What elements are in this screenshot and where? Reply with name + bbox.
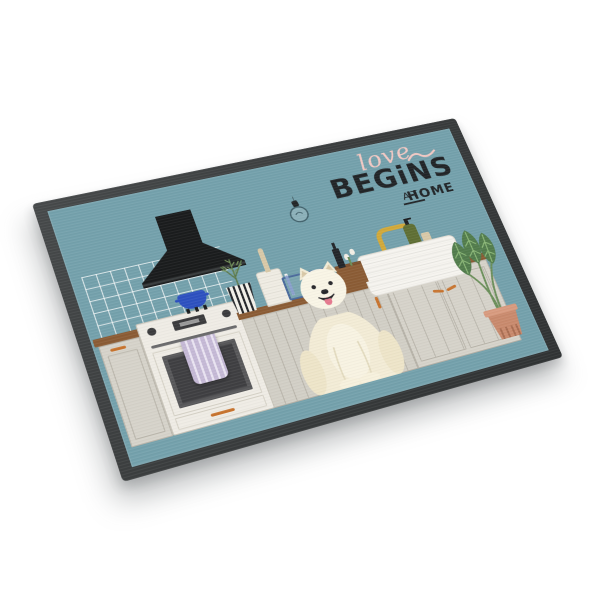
sink-cabinet-handle bbox=[446, 284, 457, 291]
sink-cabinet-handle bbox=[433, 290, 444, 293]
doormat-surface: love BEGiNS ATHOME bbox=[47, 128, 548, 467]
doormat: love BEGiNS ATHOME bbox=[32, 118, 563, 482]
product-photo: love BEGiNS ATHOME bbox=[0, 0, 600, 600]
stove-display bbox=[172, 314, 207, 331]
stove-knob bbox=[221, 309, 232, 318]
pendant-light-bulb bbox=[282, 194, 314, 226]
stove-knob bbox=[146, 327, 157, 337]
